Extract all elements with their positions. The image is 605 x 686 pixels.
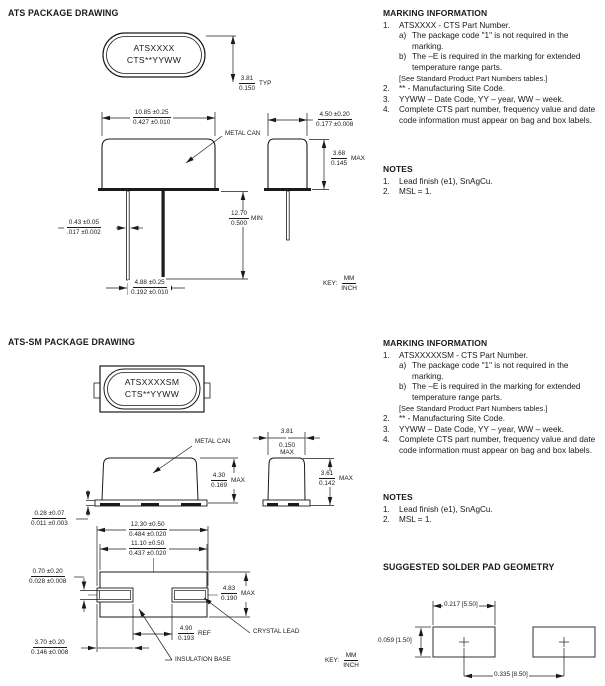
dim-atssm-body-length: 11.10 ±0.500.437 ±0.020: [126, 541, 169, 557]
ats-marking-line1: ATSXXXX: [104, 43, 204, 53]
dim-suffix: MAX: [351, 156, 365, 162]
bracket-note: [See Standard Product Part Numbers table…: [383, 404, 602, 414]
dim-atssm-lead-gap: 4.900.193 REF: [175, 626, 212, 642]
dim-ats-lead-dia: 0.43 ±0.05.017 ±0.002: [64, 220, 104, 236]
list-item: 1.Lead finish (e1), SnAgCu.: [383, 505, 602, 515]
dim-inch: 0.169: [209, 481, 229, 489]
item-number: b): [399, 52, 412, 73]
dim-ats-marking-height: 3.810.150 TYP: [236, 76, 272, 92]
item-text: The package code "1" is not required in …: [412, 31, 602, 52]
dim-atssm-lead-thickness: 0.70 ±0.200.028 ±0.008: [26, 569, 69, 585]
dim-atssm-can-height: 4.300.169 MAX: [208, 473, 246, 489]
dim-suffix: MAX: [241, 591, 255, 597]
list-item: 4.Complete CTS part number, frequency va…: [383, 435, 602, 456]
item-text: Complete CTS part number, frequency valu…: [399, 105, 602, 126]
item-text: Complete CTS part number, frequency valu…: [399, 435, 602, 456]
dim-mm: 10.85 ±0.25: [133, 110, 171, 118]
atssm-section-title: ATS-SM PACKAGE DRAWING: [8, 337, 135, 347]
dim-inch: 0.150: [237, 84, 257, 92]
ats-marking-line2: CTS**YYWW: [104, 55, 204, 65]
item-text: ** - Manufacturing Site Code.: [399, 414, 505, 424]
item-number: b): [399, 382, 412, 403]
dim-atssm-base-thickness: 0.28 ±0.070.011 ±0.003: [28, 511, 71, 527]
dim-suffix: MAX: [231, 478, 245, 484]
ats-notes: NOTES 1.Lead finish (e1), SnAgCu. 2.MSL …: [383, 164, 602, 198]
crystal-lead-right-sm: [172, 588, 208, 602]
dim-suffix: TYP: [259, 81, 271, 87]
can-base: [98, 188, 219, 191]
item-number: 3.: [383, 95, 399, 105]
dim-mm: 4.83: [221, 586, 237, 594]
dim-ats-lead-length: 12.700.500 MIN: [228, 211, 264, 227]
dim-mm: 0.43 ±0.05: [67, 220, 101, 228]
dim-ats-lead-spacing: 4.88 ±0.250.192 ±0.010: [128, 280, 171, 296]
dim-inch: 0.028 ±0.008: [27, 577, 68, 585]
notes-heading: NOTES: [383, 492, 602, 502]
dim-suffix: MAX: [279, 450, 295, 456]
item-number: 1.: [383, 177, 399, 187]
metal-can-outline-side: [268, 139, 307, 188]
dim-inch: 0.192 ±0.010: [129, 288, 170, 296]
dim-suffix: REF: [198, 631, 211, 637]
dim-suffix: MIN: [251, 216, 263, 222]
list-subitem: b)The –E is required in the marking for …: [383, 52, 602, 73]
ats-marking-info: MARKING INFORMATION 1.ATSXXXX - CTS Part…: [383, 8, 602, 127]
marking-info-heading: MARKING INFORMATION: [383, 8, 602, 18]
dim-inch: 0.177 ±0.008: [314, 120, 355, 128]
dim-mm: 3.70 ±0.20: [33, 640, 67, 648]
list-item: 1.Lead finish (e1), SnAgCu.: [383, 177, 602, 187]
item-number: 2.: [383, 84, 399, 94]
item-text: The package code "1" is not required in …: [412, 361, 602, 382]
can-base-side: [264, 188, 311, 191]
dim-mm: 4.50 ±0.20: [318, 112, 352, 120]
dim-inch: 0.146 ±0.008: [29, 648, 70, 656]
atssm-marking-info: MARKING INFORMATION 1.ATSXXXXXSM - CTS P…: [383, 338, 602, 457]
dim-ats-body-depth: 4.50 ±0.200.177 ±0.008: [313, 112, 356, 128]
notes-heading: NOTES: [383, 164, 602, 174]
dim-inch: 0.193: [176, 634, 196, 642]
item-number: 4.: [383, 105, 399, 126]
dim-inch: 0.145: [329, 159, 349, 167]
key-abbreviation-sm: KEY: MMINCH: [324, 653, 362, 669]
item-number: a): [399, 361, 412, 382]
dim-mm: 12.70: [229, 211, 249, 219]
dim-mm: 3.81: [239, 76, 255, 84]
dim-atssm-lead-width: 3.70 ±0.200.146 ±0.008: [28, 640, 71, 656]
dim-mm: 4.90: [178, 626, 194, 634]
ats-front-view: [58, 112, 248, 295]
dim-value: 0.217 [5.50]: [444, 602, 478, 608]
atssm-marking-line2: CTS**YYWW: [102, 389, 202, 399]
item-number: a): [399, 31, 412, 52]
dim-atssm-can-height-end: 3.610.142 MAX: [316, 471, 354, 487]
list-item: 2.** - Manufacturing Site Code.: [383, 414, 602, 424]
atssm-tab-right: [204, 383, 210, 398]
dim-inch: 0.484 ±0.020: [127, 530, 168, 538]
solder-pad-heading: SUGGESTED SOLDER PAD GEOMETRY: [383, 562, 555, 572]
marking-info-heading: MARKING INFORMATION: [383, 338, 602, 348]
item-text: ATSXXXXXSM - CTS Part Number.: [399, 351, 528, 361]
datasheet-page: ATS PACKAGE DRAWING ATS-SM PACKAGE DRAWI…: [0, 0, 605, 686]
dim-atssm-body-width: 4.830.190 MAX: [218, 586, 256, 602]
dim-ats-body-width: 10.85 ±0.250.427 ±0.010: [130, 110, 173, 126]
item-number: 2.: [383, 414, 399, 424]
item-text: ATSXXXX - CTS Part Number.: [399, 21, 510, 31]
crystal-lead-left: [127, 191, 130, 280]
crystal-lead-label: CRYSTAL LEAD: [252, 628, 300, 635]
list-item: 2.MSL = 1.: [383, 187, 602, 197]
atssm-tab-left: [94, 383, 100, 398]
dim-value: 0.335 [8.50]: [494, 672, 528, 678]
crystal-lead-right: [162, 191, 165, 277]
atssm-notes: NOTES 1.Lead finish (e1), SnAgCu. 2.MSL …: [383, 492, 602, 526]
dim-inch: 0.427 ±0.010: [131, 118, 172, 126]
ats-side-view: [264, 113, 329, 240]
list-item: 3.YYWW – Date Code, YY – year, WW – week…: [383, 95, 602, 105]
key-inch: INCH: [339, 284, 359, 292]
atssm-marking-line1: ATSXXXXSM: [102, 377, 202, 387]
dim-suffix: MAX: [339, 476, 353, 482]
item-number: 1.: [383, 505, 399, 515]
key-label: KEY:: [323, 281, 337, 287]
crystal-lead-left-sm: [97, 588, 133, 602]
dim-mm: 4.88 ±0.25: [133, 280, 167, 288]
key-label: KEY:: [325, 658, 339, 664]
item-text: Lead finish (e1), SnAgCu.: [399, 505, 493, 515]
dim-pad-pitch: 0.335 [8.50]: [493, 672, 529, 678]
dim-mm: 3.61: [319, 471, 335, 479]
list-subitem: a)The package code "1" is not required i…: [383, 31, 602, 52]
insulation-base-label: INSULATION BASE: [174, 656, 232, 663]
list-item: 4.Complete CTS part number, frequency va…: [383, 105, 602, 126]
item-text: The –E is required in the marking for ex…: [412, 52, 602, 73]
item-text: MSL = 1.: [399, 187, 432, 197]
solder-pad-geometry: [415, 601, 595, 676]
key-inch: INCH: [341, 661, 361, 669]
dim-value: 0.059 [1.50]: [378, 638, 412, 644]
list-subitem: b)The –E is required in the marking for …: [383, 382, 602, 403]
item-text: MSL = 1.: [399, 515, 432, 525]
key-mm: MM: [344, 653, 359, 661]
crystal-lead-side: [287, 191, 290, 240]
key-mm: MM: [342, 276, 357, 284]
dim-inch: .017 ±0.002: [65, 228, 103, 236]
dim-mm: 4.30: [211, 473, 227, 481]
item-number: 3.: [383, 425, 399, 435]
item-text: YYWW – Date Code, YY – year, WW – week.: [399, 425, 564, 435]
metal-can-outline-sm: [102, 458, 198, 500]
item-text: Lead finish (e1), SnAgCu.: [399, 177, 493, 187]
list-item: 1.ATSXXXX - CTS Part Number.: [383, 21, 602, 31]
ats-section-title: ATS PACKAGE DRAWING: [8, 8, 119, 18]
list-subitem: a)The package code "1" is not required i…: [383, 361, 602, 382]
dim-pad-width: 0.217 [5.50]: [443, 602, 479, 608]
dim-mm: 12.30 ±0.50: [129, 522, 167, 530]
item-number: 1.: [383, 21, 399, 31]
dim-inch: 0.011 ±0.003: [29, 519, 70, 527]
dim-inch: 0.437 ±0.020: [127, 549, 168, 557]
dim-mm: 11.10 ±0.50: [129, 541, 166, 549]
item-number: 4.: [383, 435, 399, 456]
bracket-note: [See Standard Product Part Numbers table…: [383, 74, 602, 84]
list-item: 2.** - Manufacturing Site Code.: [383, 84, 602, 94]
dim-mm: 0.70 ±0.20: [31, 569, 65, 577]
item-text: ** - Manufacturing Site Code.: [399, 84, 505, 94]
item-number: 2.: [383, 187, 399, 197]
dim-inch: 0.190: [219, 594, 239, 602]
list-item: 2.MSL = 1.: [383, 515, 602, 525]
dim-atssm-overall-length: 12.30 ±0.500.484 ±0.020: [126, 522, 169, 538]
item-number: 1.: [383, 351, 399, 361]
key-abbreviation: KEY: MMINCH: [322, 276, 360, 292]
dim-mm: 3.68: [331, 151, 347, 159]
list-item: 1.ATSXXXXXSM - CTS Part Number.: [383, 351, 602, 361]
metal-can-outline-sm-end: [268, 458, 305, 500]
dim-ats-body-height: 3.680.145 MAX: [328, 151, 366, 167]
dim-inch: 0.500: [229, 219, 249, 227]
dim-pad-height: 0.059 [1.50]: [377, 638, 413, 644]
dim-atssm-can-width-top: 3.81 0.150 MAX: [267, 429, 307, 456]
item-text: The –E is required in the marking for ex…: [412, 382, 602, 403]
metal-can-outline: [102, 139, 215, 188]
item-number: 2.: [383, 515, 399, 525]
metal-can-label-sm: METAL CAN: [194, 438, 231, 445]
dim-mm: 0.28 ±0.07: [32, 511, 66, 519]
list-item: 3.YYWW – Date Code, YY – year, WW – week…: [383, 425, 602, 435]
item-text: YYWW – Date Code, YY – year, WW – week.: [399, 95, 564, 105]
dim-inch: 0.142: [317, 479, 337, 487]
metal-can-label: METAL CAN: [224, 130, 261, 137]
